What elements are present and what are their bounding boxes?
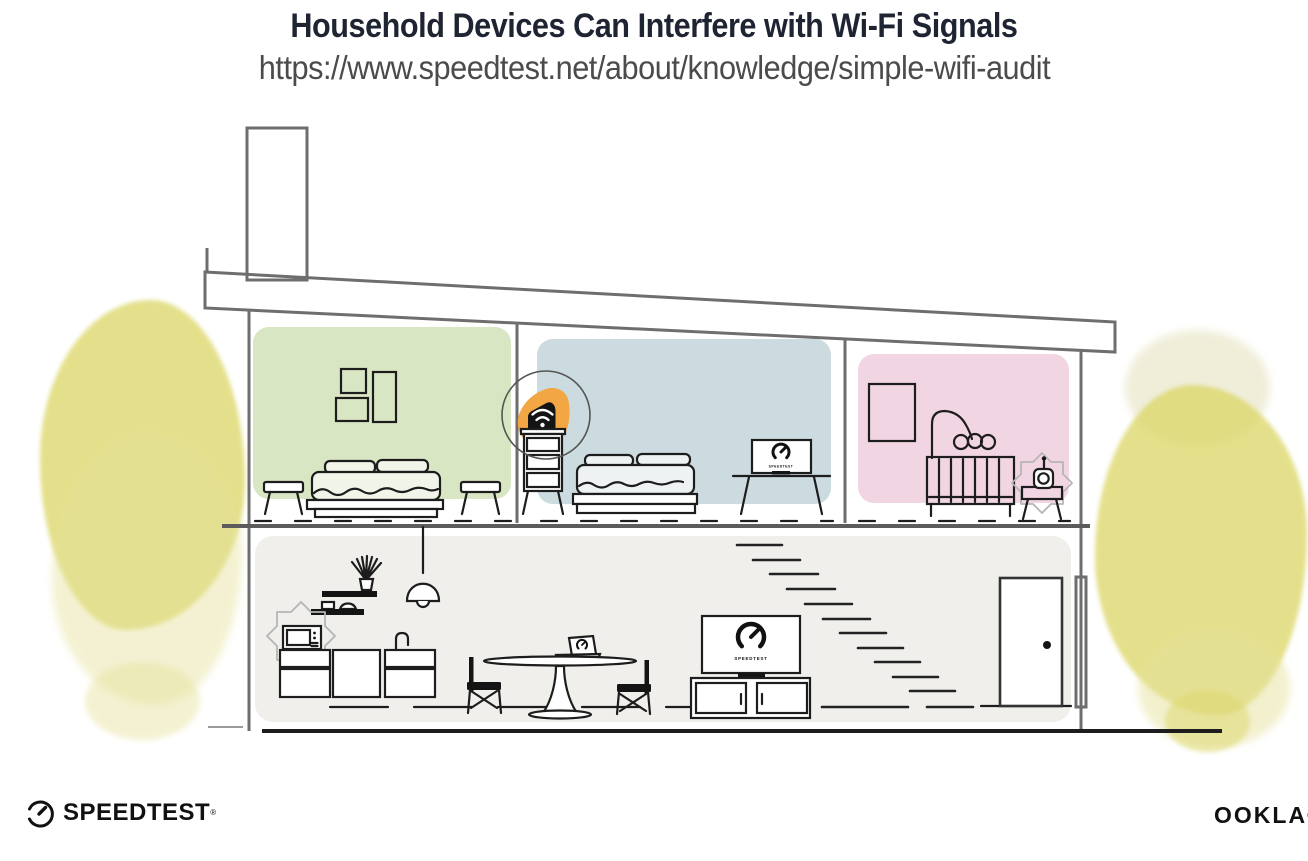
bedroom-tv: SPEEDTEST xyxy=(752,440,811,474)
source-url: https://www.speedtest.net/about/knowledg… xyxy=(258,48,1049,88)
ookla-logo: OOKLA® xyxy=(1214,802,1308,829)
speedtest-gauge-icon xyxy=(22,796,56,830)
living-tv: SPEEDTEST xyxy=(702,616,800,678)
header: Household Devices Can Interfere with Wi-… xyxy=(0,6,1308,88)
page-title: Household Devices Can Interfere with Wi-… xyxy=(290,6,1017,46)
speedtest-trademark: ® xyxy=(210,808,216,818)
speedtest-wordmark: SPEEDTEST xyxy=(63,799,210,827)
laptop xyxy=(569,636,596,656)
door-knob xyxy=(1043,641,1051,649)
front-door xyxy=(1000,578,1062,706)
master-bed xyxy=(307,460,443,517)
bedroom-tv-caption: SPEEDTEST xyxy=(769,465,794,469)
ookla-wordmark: OOKLA xyxy=(1214,802,1307,829)
microwave xyxy=(283,626,321,649)
tv-console xyxy=(691,678,810,718)
house-illustration: SPEEDTEST xyxy=(0,0,1308,861)
living-tv-caption: SPEEDTEST xyxy=(734,656,767,661)
chimney xyxy=(247,128,307,280)
speedtest-logo: SPEEDTEST® xyxy=(22,796,216,830)
infographic-page: Household Devices Can Interfere with Wi-… xyxy=(0,0,1308,861)
